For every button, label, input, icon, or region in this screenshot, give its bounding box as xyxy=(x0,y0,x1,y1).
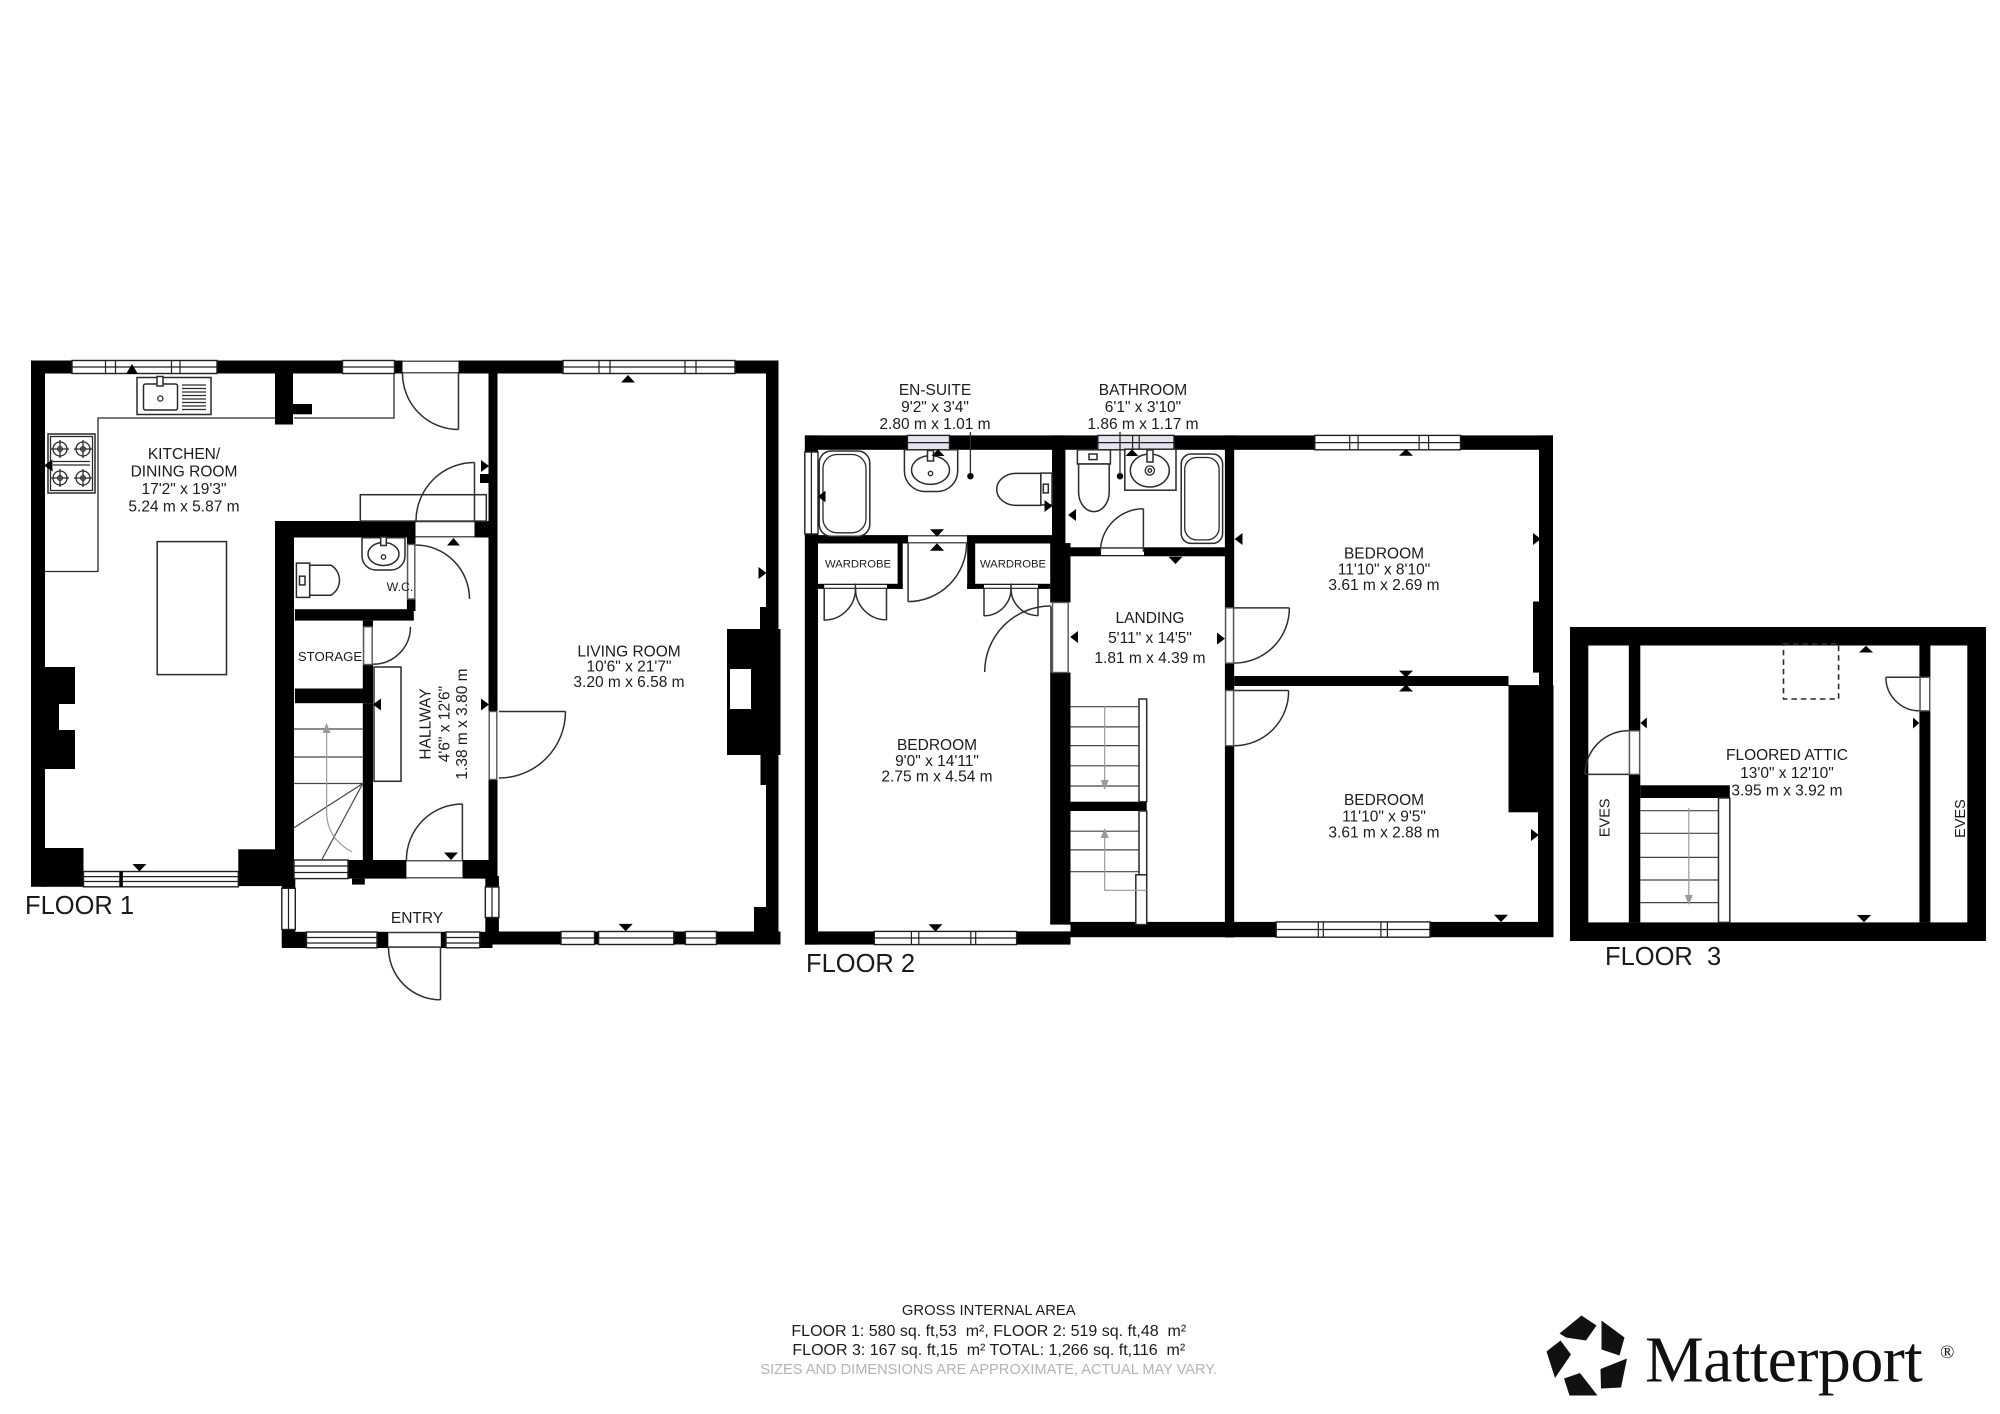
svg-text:WARDROBE: WARDROBE xyxy=(825,559,892,571)
svg-text:3.61 m x 2.88 m: 3.61 m x 2.88 m xyxy=(1328,825,1439,842)
svg-text:BEDROOM: BEDROOM xyxy=(1344,546,1424,563)
svg-text:HALLWAY: HALLWAY xyxy=(418,688,435,759)
svg-text:10'6" x 21'7": 10'6" x 21'7" xyxy=(586,659,671,676)
svg-text:Matterport: Matterport xyxy=(1645,1324,1922,1397)
svg-text:STORAGE: STORAGE xyxy=(298,649,362,664)
svg-text:BEDROOM: BEDROOM xyxy=(897,737,977,754)
svg-text:3.20 m x 6.58 m: 3.20 m x 6.58 m xyxy=(573,674,684,691)
svg-text:KITCHEN/: KITCHEN/ xyxy=(148,446,221,463)
svg-text:EN-SUITE: EN-SUITE xyxy=(899,382,971,399)
svg-text:FLOOR 3: FLOOR 3 xyxy=(1605,943,1721,971)
svg-text:FLOOR 1: 580 sq. ft,53 m², FL: FLOOR 1: 580 sq. ft,53 m², FLOOR 2: 519 … xyxy=(791,1323,1186,1340)
svg-text:3.95 m x 3.92 m: 3.95 m x 3.92 m xyxy=(1731,783,1842,800)
svg-text:5'11" x 14'5": 5'11" x 14'5" xyxy=(1108,630,1192,647)
svg-text:ENTRY: ENTRY xyxy=(391,910,443,927)
svg-text:1.86 m x 1.17 m: 1.86 m x 1.17 m xyxy=(1087,416,1198,433)
svg-text:1.81 m x 4.39 m: 1.81 m x 4.39 m xyxy=(1094,650,1205,667)
svg-text:4'6" x 12'6": 4'6" x 12'6" xyxy=(437,686,454,762)
svg-text:2.80 m x 1.01 m: 2.80 m x 1.01 m xyxy=(879,416,990,433)
svg-text:FLOOR 1: FLOOR 1 xyxy=(25,892,134,920)
svg-text:EVES: EVES xyxy=(1598,798,1614,837)
svg-text:FLOOR 2: FLOOR 2 xyxy=(806,950,915,978)
svg-text:13'0" x 12'10": 13'0" x 12'10" xyxy=(1740,765,1834,782)
svg-text:11'10" x 9'5": 11'10" x 9'5" xyxy=(1342,809,1426,826)
svg-text:FLOOR 3: 167 sq. ft,15 m² TOT: FLOOR 3: 167 sq. ft,15 m² TOTAL: 1,266 s… xyxy=(792,1342,1185,1359)
svg-text:3.61 m x 2.69 m: 3.61 m x 2.69 m xyxy=(1328,577,1439,594)
svg-text:5.24 m x 5.87 m: 5.24 m x 5.87 m xyxy=(128,499,239,516)
svg-text:17'2" x 19'3": 17'2" x 19'3" xyxy=(141,481,226,498)
svg-text:LANDING: LANDING xyxy=(1116,610,1185,627)
svg-text:1.38 m x 3.80 m: 1.38 m x 3.80 m xyxy=(454,668,471,779)
svg-text:BATHROOM: BATHROOM xyxy=(1099,382,1187,399)
svg-text:SIZES AND DIMENSIONS ARE APPRO: SIZES AND DIMENSIONS ARE APPROXIMATE, AC… xyxy=(760,1362,1217,1378)
svg-text:WARDROBE: WARDROBE xyxy=(980,559,1047,571)
svg-text:2.75 m x 4.54 m: 2.75 m x 4.54 m xyxy=(881,769,992,786)
svg-text:EVES: EVES xyxy=(1953,799,1969,838)
svg-text:9'0" x 14'11": 9'0" x 14'11" xyxy=(895,753,979,770)
svg-text:6'1" x 3'10": 6'1" x 3'10" xyxy=(1105,399,1181,416)
svg-text:W.C.: W.C. xyxy=(387,580,414,594)
svg-text:DINING ROOM: DINING ROOM xyxy=(131,464,238,481)
svg-text:11'10" x 8'10": 11'10" x 8'10" xyxy=(1338,562,1430,579)
svg-text:BEDROOM: BEDROOM xyxy=(1344,792,1424,809)
svg-text:GROSS INTERNAL AREA: GROSS INTERNAL AREA xyxy=(902,1303,1076,1319)
svg-text:FLOORED ATTIC: FLOORED ATTIC xyxy=(1726,747,1848,764)
svg-text:®: ® xyxy=(1940,1342,1954,1363)
svg-text:9'2" x 3'4": 9'2" x 3'4" xyxy=(901,399,969,416)
